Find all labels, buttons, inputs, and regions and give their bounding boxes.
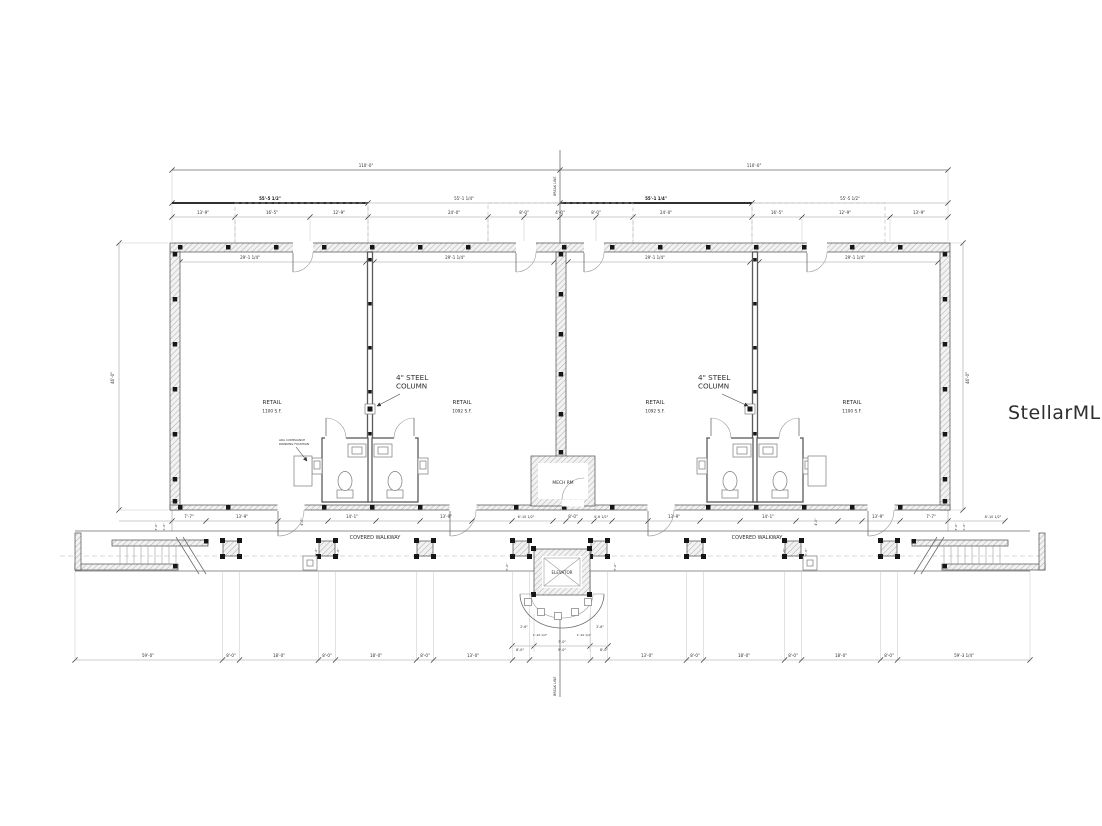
dimension-label: 7'-7" — [926, 514, 936, 519]
dimension-label: 4'-0" — [814, 518, 818, 526]
dimension-label: 18'-0" — [370, 653, 382, 658]
dimension-label: 1'-10 1/2" — [533, 633, 548, 637]
room-label: RETAIL — [646, 400, 666, 406]
dimension-label: 13'-9" — [913, 210, 925, 215]
dimension-label: 1'-6" — [162, 523, 166, 531]
callout-label: DRINKING FOUNTAIN — [279, 442, 309, 446]
dimension-label: 7'-0" — [558, 640, 566, 644]
dimension-label: 55'-5 1/2" — [840, 196, 860, 201]
dimension-label: 7'-7" — [184, 514, 194, 519]
dimension-label: 3'-0" — [954, 523, 958, 531]
break-line-label: BREAK LINE — [553, 177, 557, 196]
dimension-label: 8'-0" — [788, 653, 798, 658]
dimension-label: 12'-9" — [333, 210, 345, 215]
dimension-label: 4'-0" — [300, 518, 304, 526]
callout-label: COLUMN — [396, 381, 427, 390]
dimension-label: 2'-6" — [596, 625, 604, 629]
dimension-layer: 110'-0"110'-0"55'-5 1/2"55'-1 1/4"55'-1 … — [72, 150, 1032, 697]
room-area-label: 1100 S.F. — [842, 409, 862, 415]
dimension-label: 8'-0" — [420, 653, 430, 658]
break-line-label: BREAK LINE — [553, 677, 557, 696]
dimension-label: 4'-6 1/2" — [594, 515, 609, 519]
dimension-label: 13'-9" — [197, 210, 209, 215]
dimension-label: 8'-0" — [690, 653, 700, 658]
room-area-label: 1100 S.F. — [262, 409, 282, 415]
dimension-label: 29'-1 1/4" — [445, 255, 465, 260]
dimension-label: 16'-5" — [266, 210, 278, 215]
room-label: RETAIL — [263, 400, 283, 406]
dimension-label: 110'-0" — [747, 163, 762, 168]
dimension-label: 1'-10 1/2" — [577, 633, 592, 637]
dimension-label: 24'-0" — [660, 210, 672, 215]
dimension-label: 13'-9" — [872, 514, 884, 519]
dimension-label: 1'-6" — [962, 523, 966, 531]
dimension-label: 29'-1 1/4" — [845, 255, 865, 260]
dimension-label: 8'-10 1/2" — [985, 515, 1002, 519]
dimension-label: 9'-0" — [558, 648, 566, 652]
dimension-label: 46'-0" — [965, 372, 970, 384]
dimension-label: 59'-3 1/4" — [954, 653, 974, 658]
dimension-label: 13'-9" — [236, 514, 248, 519]
dimension-label: 4'-0" — [555, 210, 565, 215]
dimension-label: 8'-0" — [591, 210, 601, 215]
covered-walkway-label: COVERED WALKWAY — [732, 535, 784, 541]
room-area-label: 1092 S.F. — [645, 409, 665, 415]
dimension-label: 29'-1 1/4" — [645, 255, 665, 260]
dimension-label: 3'-0" — [154, 523, 158, 531]
floor-plan-drawing: 110'-0"110'-0"55'-5 1/2"55'-1 1/4"55'-1 … — [0, 0, 1102, 826]
dimension-label: 8'-0" — [568, 514, 578, 519]
dimension-label: 5'-0" — [613, 563, 617, 571]
dimension-label: 8'-0" — [600, 648, 608, 652]
covered-walkway-label: COVERED WALKWAY — [350, 535, 402, 541]
dimension-label: 18'-0" — [273, 653, 285, 658]
dimension-label: 13'-0" — [641, 653, 653, 658]
watermark-layer: StellarMLS — [1008, 402, 1102, 424]
dimension-label: 18'-0" — [738, 653, 750, 658]
dimension-label: 24'-0" — [448, 210, 460, 215]
dimension-label: 18'-0" — [835, 653, 847, 658]
dimension-label: 110'-0" — [359, 163, 374, 168]
dimension-label: 55'-5 1/2" — [259, 196, 281, 201]
room-area-label: 1092 S.F. — [452, 409, 472, 415]
dimension-label: 55'-1 1/4" — [454, 196, 474, 201]
dimension-label: 8'-0" — [884, 653, 894, 658]
dimension-label: 13'-0" — [467, 653, 479, 658]
callout-label: COLUMN — [698, 381, 729, 390]
dimension-label: 8'-0" — [519, 210, 529, 215]
dimension-label: 12'-9" — [839, 210, 851, 215]
site-walkway-layer — [60, 531, 1045, 663]
dimension-label: 16'-5" — [771, 210, 783, 215]
elevator-label: ELEVATOR — [551, 570, 572, 575]
dimension-label: 14'-1" — [762, 514, 774, 519]
dimension-label: 55'-1 1/4" — [645, 196, 667, 201]
dimension-label: 2'-6" — [520, 625, 528, 629]
dimension-label: 14'-1" — [346, 514, 358, 519]
room-label: RETAIL — [843, 400, 863, 406]
mech-room-label: MECH RM — [552, 480, 573, 486]
dimension-label: 6'-10 1/2" — [518, 515, 535, 519]
dimension-label: 8'-0" — [226, 653, 236, 658]
floor-plan-canvas: 110'-0"110'-0"55'-5 1/2"55'-1 1/4"55'-1 … — [0, 0, 1102, 826]
dimension-label: 8'-0" — [516, 648, 524, 652]
watermark: StellarMLS — [1008, 402, 1102, 424]
dimension-label: 59'-0" — [142, 653, 154, 658]
dimension-label: 29'-1 1/4" — [240, 255, 260, 260]
dimension-label: 46'-0" — [110, 372, 115, 384]
dimension-label: 8'-0" — [322, 653, 332, 658]
dimension-label: 13'-9" — [668, 514, 680, 519]
building-layer — [170, 243, 950, 537]
dimension-label: 13'-9" — [440, 514, 452, 519]
room-label: RETAIL — [453, 400, 473, 406]
dimension-label: 5'-0" — [804, 548, 808, 556]
dimension-label: 5'-0" — [505, 563, 509, 571]
